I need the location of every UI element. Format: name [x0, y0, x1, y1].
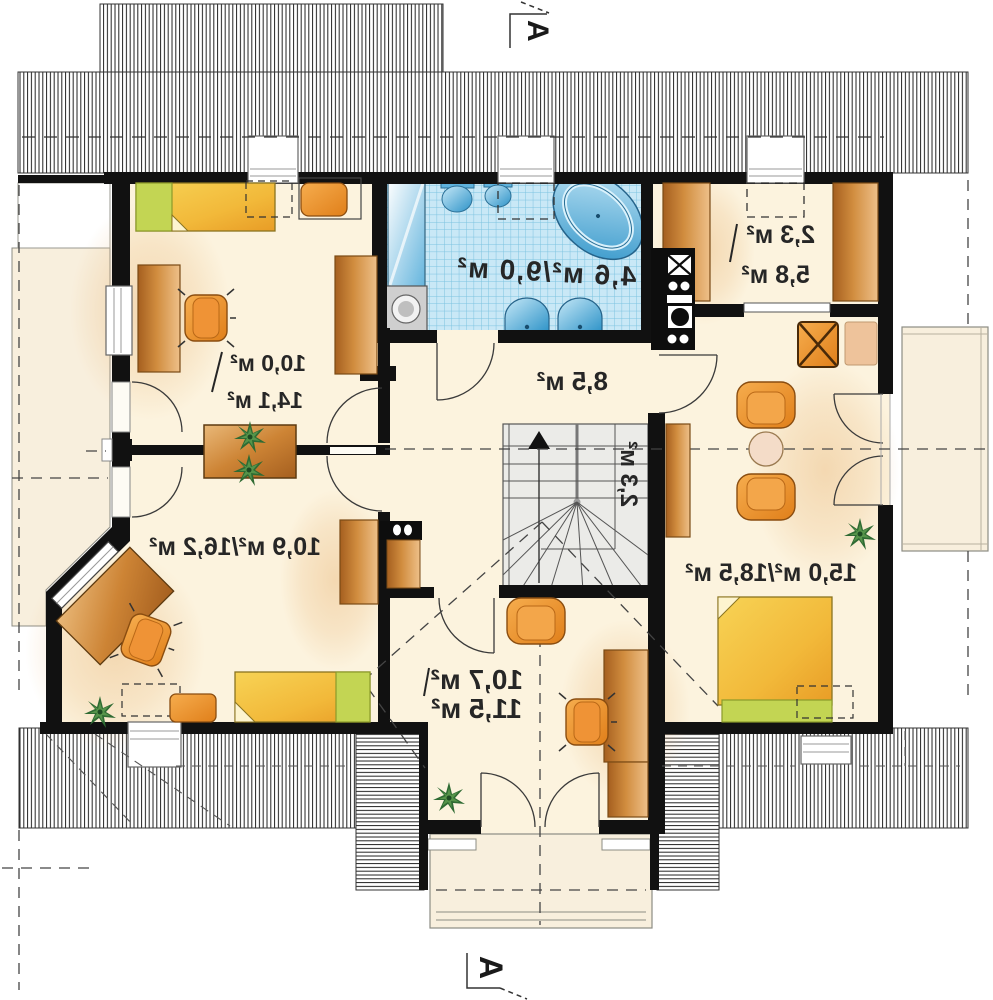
svg-text:10,9 м²/16,2 м²: 10,9 м²/16,2 м² [149, 533, 321, 561]
svg-text:5,8 м²: 5,8 м² [741, 261, 810, 289]
svg-text:10,7 м²: 10,7 м² [431, 664, 523, 695]
svg-text:14,1 м²: 14,1 м² [227, 387, 303, 413]
svg-text:2,3 м²: 2,3 м² [615, 441, 642, 507]
svg-text:2,3 м²: 2,3 м² [746, 221, 815, 249]
svg-text:10,0 м²: 10,0 м² [230, 350, 306, 376]
svg-text:11,5 м²: 11,5 м² [431, 693, 522, 724]
svg-text:15,0 м²/18,5 м²: 15,0 м²/18,5 м² [685, 559, 857, 587]
svg-text:A: A [473, 956, 509, 979]
svg-text:8,5 м²: 8,5 м² [536, 366, 608, 396]
svg-text:A: A [521, 20, 554, 42]
